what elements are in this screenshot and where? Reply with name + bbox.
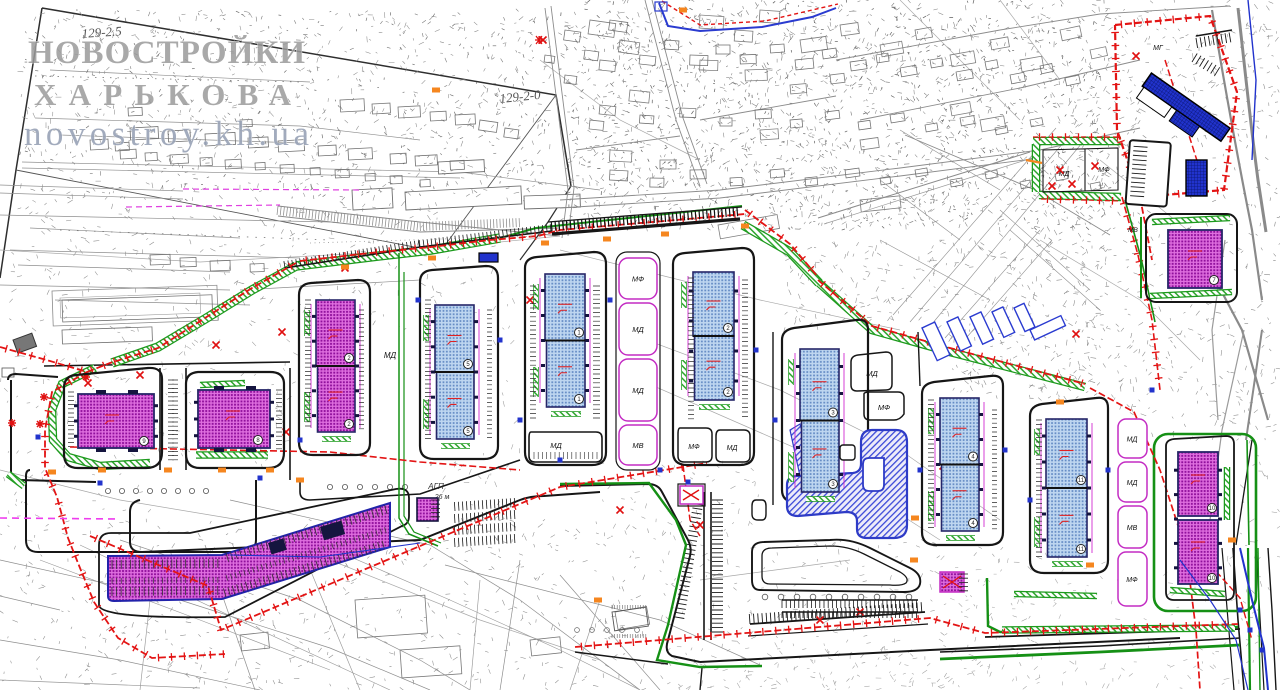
svg-text:АГП: АГП: [427, 482, 444, 491]
svg-text:МД: МД: [632, 325, 644, 334]
svg-text:МФ: МФ: [688, 444, 700, 451]
svg-text:МФ: МФ: [1126, 577, 1138, 584]
svg-text:10: 10: [1209, 506, 1216, 512]
svg-text:МВ: МВ: [1127, 525, 1138, 532]
svg-text:11: 11: [1078, 478, 1085, 484]
svg-text:МФ: МФ: [1098, 167, 1110, 174]
svg-text:МД: МД: [384, 351, 397, 360]
svg-text:10: 10: [1209, 576, 1216, 582]
svg-text:МД: МД: [727, 445, 738, 452]
svg-text:МВ: МВ: [632, 441, 643, 450]
svg-text:МД: МД: [866, 369, 878, 378]
svg-text:МФ: МФ: [632, 275, 644, 284]
svg-text:МД: МД: [632, 386, 644, 395]
svg-text:МД: МД: [1127, 480, 1138, 487]
svg-text:МФ: МФ: [878, 403, 890, 412]
svg-text:11: 11: [1078, 547, 1085, 553]
svg-text:МД: МД: [550, 441, 562, 450]
svg-text:НОВОСТРОЙКИ: НОВОСТРОЙКИ: [28, 34, 308, 71]
svg-text:ХАРЬКОВА: ХАРЬКОВА: [34, 77, 302, 112]
svg-text:МГ: МГ: [1153, 45, 1164, 52]
svg-text:МД: МД: [1059, 171, 1070, 178]
svg-text:МД: МД: [1127, 437, 1138, 444]
svg-text:novostroy.kh.ua: novostroy.kh.ua: [24, 114, 312, 153]
svg-text:МВ: МВ: [1128, 227, 1138, 234]
